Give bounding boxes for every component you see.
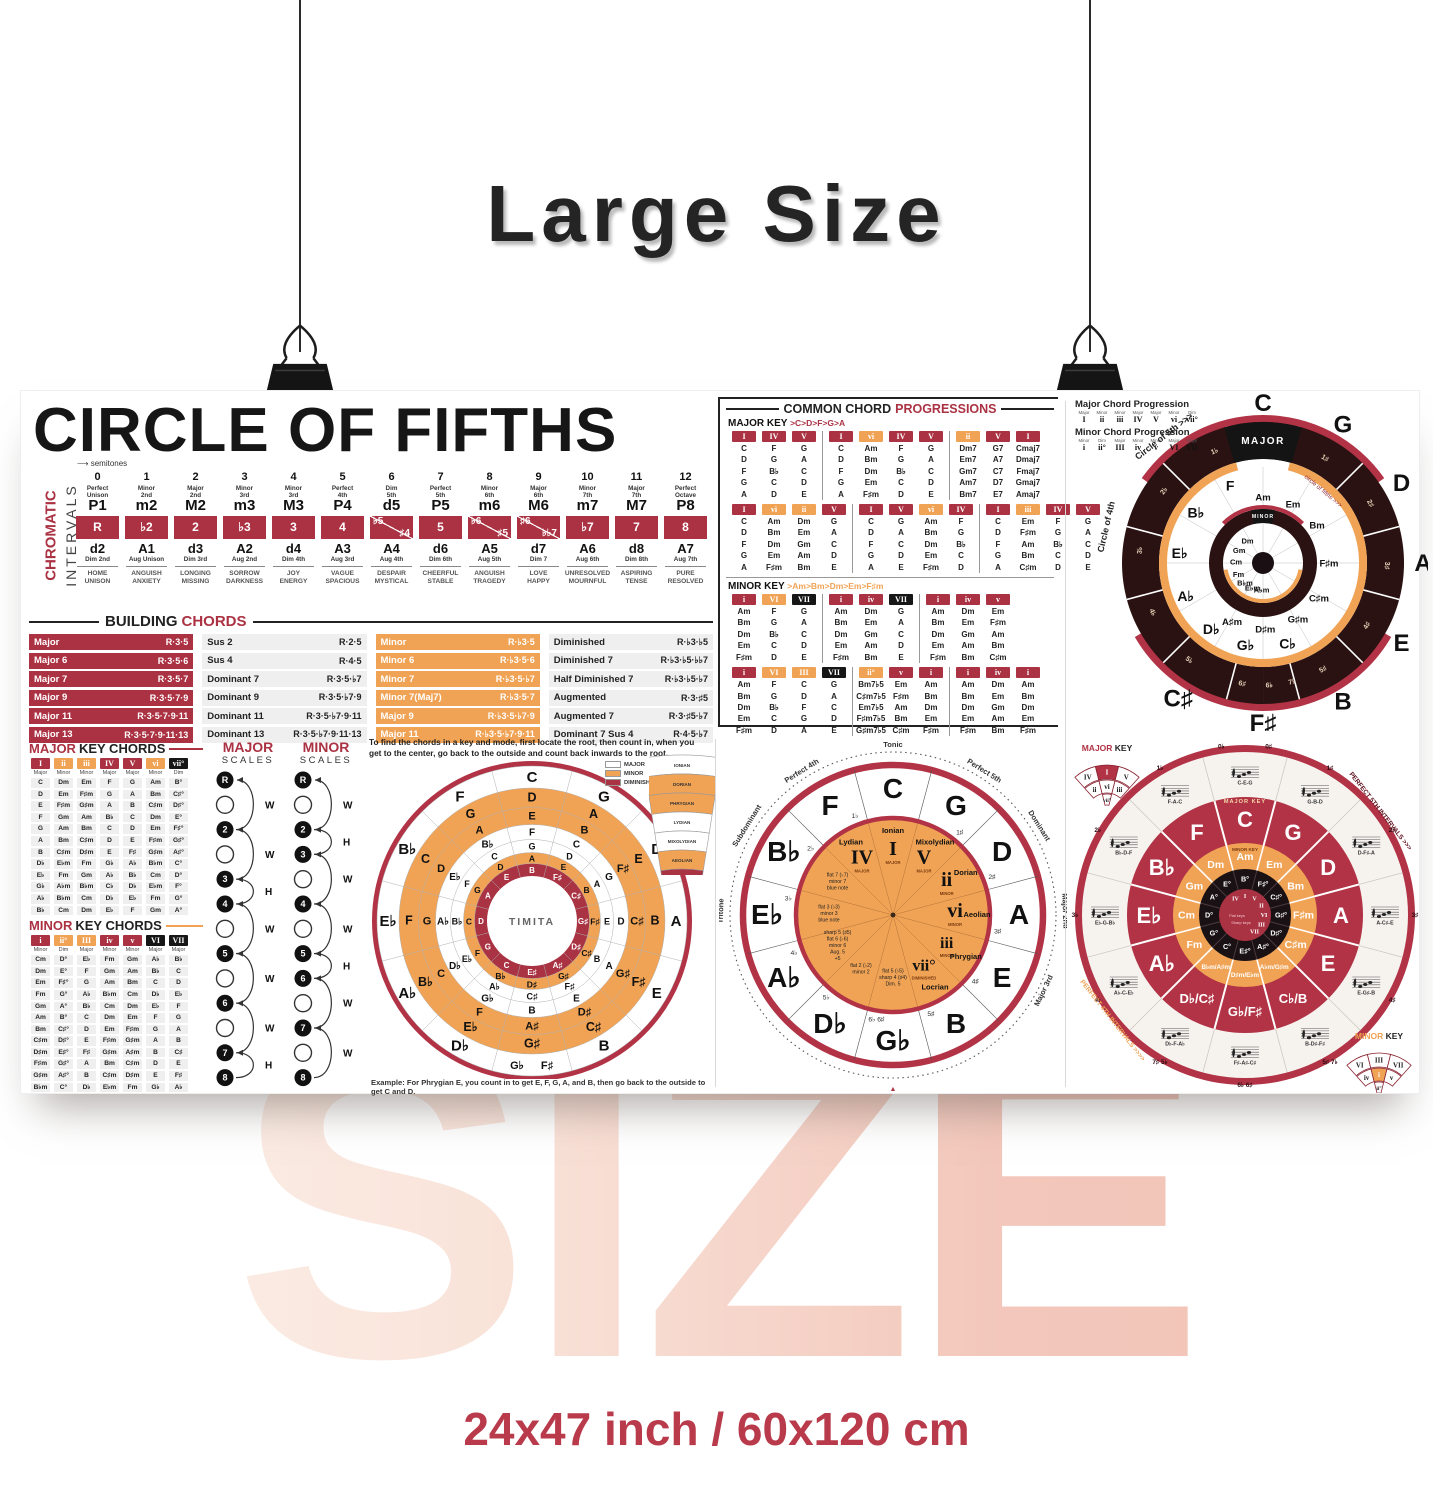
accidental-count: 4♯ <box>972 979 980 986</box>
scale-note: B <box>581 825 589 837</box>
scale-note: F <box>475 948 480 958</box>
chord-group: Sus 2R·2·5Sus 4R·4·5Dominant 7R·3·5·♭7Do… <box>202 634 366 745</box>
chord-cell: Gm <box>856 629 886 640</box>
alt-interval: A7 <box>661 541 710 556</box>
alteration-note: +5 <box>835 956 841 962</box>
interval-abbr: M6 <box>514 497 563 514</box>
chord-cell: Dmaj7 <box>1013 454 1043 465</box>
roman-numeral-chip: iv <box>956 594 980 605</box>
alt-interval: A6 <box>563 541 612 556</box>
chord-cell: C <box>789 466 819 477</box>
minor-key-chords-title: MINORKEY CHORDS <box>29 918 203 933</box>
chord-cell: A <box>983 562 1013 573</box>
numeral-chips: iivVII <box>826 594 916 605</box>
chord-cell: G <box>77 978 96 988</box>
progression-line: DmGmDm <box>953 702 1043 713</box>
outer-function-label: Tritone <box>719 898 726 923</box>
alteration-note: flat 6 (♭6) <box>827 937 849 943</box>
minor-key-chain: >Am>Bm>Dm>Em>F♯m <box>787 581 883 591</box>
roman-numeral-chip: IV <box>100 758 119 769</box>
chord-cell: Bm <box>856 652 886 663</box>
alt-interval: d6 <box>416 541 465 556</box>
alt-interval-name: Aug 4th <box>371 556 412 567</box>
chord-cell: Em <box>983 606 1013 617</box>
note-head <box>1358 845 1362 848</box>
roman-numeral-chip: I <box>1016 431 1040 442</box>
chord-cell: Bm <box>983 640 1013 651</box>
staff-circle-section: 0♭0♯1♯2♯3♯4♯5♯ 7♭6♭ 6♯7♯ 5♭4♭3♭2♭1♭PERFE… <box>1069 737 1421 1093</box>
flat-key-letter: G♭ <box>1237 637 1255 653</box>
triad-label: F-A-C <box>1168 799 1183 805</box>
alteration-note: flat 2 (♭2) <box>850 963 872 969</box>
chord-cell: Em <box>826 640 856 651</box>
scale-step-label: 4 <box>300 899 305 909</box>
chord-cell: Dm <box>100 1013 119 1023</box>
seventh-note: E <box>504 873 510 882</box>
progression-line: DBmGA <box>826 454 946 465</box>
numeral-chips: IviiiV <box>729 504 849 515</box>
progression-row: IIVVCFGDGAFB♭CGCDADEIviIVVCAmFGDBmGAFDmB… <box>726 431 1054 500</box>
chord-cell: F♯m <box>983 617 1013 628</box>
title-accent: MINOR <box>29 918 72 933</box>
semitone-number: 2 <box>171 471 220 483</box>
mode-numeral: V <box>917 846 932 868</box>
interval-arc <box>314 780 331 830</box>
chord-cell: E♭m <box>146 882 165 892</box>
numeral-chips: iii°IIIivvVIVII <box>29 935 203 946</box>
key-chords-row: C♯mD♯°EF♯mG♯mAB <box>29 1035 203 1047</box>
chord-cell: G <box>983 550 1013 561</box>
chord-cell: C <box>31 778 50 788</box>
chord-cell: F <box>946 516 976 527</box>
chord-cell: D♯m <box>77 848 96 858</box>
quality-label: Major <box>121 770 144 776</box>
circle-of-fifths-poster: CIRCLE OF FIFTHS CHROMATIC INTERVALS ⟶ s… <box>20 390 1420 1094</box>
mode-numeral: IV <box>851 846 874 868</box>
chord-cell: Dm <box>916 702 946 713</box>
feel-line: UNRESOLVED <box>563 570 612 578</box>
chord-cell: Am <box>953 679 983 690</box>
chord-cell: D♭ <box>77 1083 96 1093</box>
progression-line: DmB♭C <box>729 629 819 640</box>
major-key-letter: F <box>1190 820 1203 845</box>
binder-clip-right <box>1047 322 1133 398</box>
scale-step-label: 2 <box>222 825 227 835</box>
chord-cell: Cmaj7 <box>1013 443 1043 454</box>
scale-note: D♯ <box>578 1006 592 1018</box>
feel-line: SORROW <box>220 570 269 578</box>
numeral-chips: IiiiiiIVVvivii° <box>29 758 203 769</box>
feel-line: TENSE <box>612 578 661 586</box>
interval-feel: ASPIRINGTENSE <box>612 567 661 586</box>
chord-cell: C♯m <box>146 801 165 811</box>
chord-cell: Bm <box>789 562 819 573</box>
chord-cell: D <box>886 489 916 500</box>
scale-note: F♯ <box>632 975 646 989</box>
numeral: iv <box>1129 443 1147 452</box>
scale-step-label: 4 <box>222 899 227 909</box>
roman-numeral-chip: ii° <box>54 935 73 946</box>
major-key-letter: G <box>1334 411 1353 438</box>
alteration-note: sharp 5 (♯5) <box>824 930 852 936</box>
scale-note: G♭ <box>481 994 494 1005</box>
semitone-number: 7 <box>416 471 465 483</box>
semitone-number: 3 <box>220 471 269 483</box>
sharp-minor-letter: Em <box>1286 500 1301 511</box>
progression-block: iiviAmDmAmBmEmBmDmGmDmEmAmEmF♯mBmF♯m <box>949 667 1046 736</box>
root-note: C <box>527 769 538 786</box>
chord-cell: F♯ <box>123 848 142 858</box>
roman-numeral-chip: VI <box>762 594 786 605</box>
chord-name: Sus 2 <box>207 637 232 648</box>
progression-block: ii°viBm7♭5EmAmC♯m7♭5F♯mBmEm7♭5AmDmF♯m7♭5… <box>852 667 949 736</box>
alt-interval-name: Dim 7 <box>518 556 559 567</box>
roman-numeral-chip: V <box>123 758 142 769</box>
modes-wedge: IONIANDORIANPHRYGIANLYDIANMIXOLYDIANAEOL… <box>649 753 715 875</box>
chord-cell: Em <box>856 477 886 488</box>
roman-numeral-chip: i <box>926 594 950 605</box>
seventh-note: G♯ <box>578 917 588 926</box>
chord-cell: A♯° <box>54 1071 73 1081</box>
chord-cell: Em <box>146 824 165 834</box>
chord-cell: G <box>789 606 819 617</box>
chord-cell: F <box>729 466 759 477</box>
alt-interval-name: Aug 7th <box>665 556 706 567</box>
numeral: v <box>1147 443 1165 452</box>
progression-line: G♯m7♭5C♯mF♯m <box>856 725 946 736</box>
chord-cell: A♭ <box>169 1083 188 1093</box>
chord-cell: G♭ <box>146 1083 165 1093</box>
arrowhead <box>237 901 243 907</box>
diminished-chord: C° <box>1223 942 1231 951</box>
quality-label: Dim <box>52 947 75 953</box>
key-chords-row: G♭A♭mB♭mC♭D♭E♭mF° <box>29 881 203 893</box>
interval-arc <box>314 830 331 855</box>
progression-line: BmGDA <box>729 691 849 702</box>
chord-formula: R·3·5·6 <box>158 656 189 666</box>
scale-step-label: 3 <box>222 874 227 884</box>
legend-swatch <box>605 761 621 768</box>
triad-label: A-C♯-E <box>1376 921 1394 927</box>
chord-cell: C♭ <box>100 882 119 892</box>
arrowhead <box>237 777 243 783</box>
chord-row: Dominant 11R·3·5·♭7·9·11 <box>202 708 366 724</box>
major-progression-blocks: IIVVCFGDGAFB♭CGCDADEIviIVVCAmFGDBmGAFDmB… <box>726 431 1054 573</box>
flat-minor-letter: Cm <box>1230 558 1242 567</box>
chord-cell: C♯m <box>123 1059 142 1069</box>
scale-note: G <box>423 916 432 928</box>
chord-cell: C <box>169 967 188 977</box>
chord-cell: D <box>169 978 188 988</box>
alteration-note: Aug. 5 <box>830 949 845 955</box>
progression-line: EmAmEm <box>953 713 1043 724</box>
progression-line: Gm7C7Fmaj7 <box>953 466 1043 477</box>
chord-cell: D <box>983 527 1013 538</box>
chord-cell: D♭ <box>31 859 50 869</box>
interval-name: Major7th <box>612 483 661 497</box>
scale-step-label: 5 <box>300 949 305 959</box>
chromatic-column: 1Minor2ndm2♭2A1Aug UnisonANGUISHANXIETY <box>122 471 171 586</box>
alt-interval: d2 <box>73 541 122 556</box>
numeral-chips: IVviIV <box>856 504 976 515</box>
brand-center: TIMITA <box>509 916 555 928</box>
chord-row: AugmentedR·3·♯5 <box>549 690 713 706</box>
note-head <box>1126 841 1130 844</box>
scale-note: A♯ <box>525 1021 539 1033</box>
roman-numeral-chip: iii <box>1016 504 1040 515</box>
seventh-note: E♯ <box>527 968 536 977</box>
outer-function-label: Subdominant <box>730 802 763 848</box>
fan-title: MAJOR KEY <box>1082 743 1133 753</box>
progression-line: FDmB♭C <box>826 466 946 477</box>
chord-cell: G <box>916 443 946 454</box>
chord-cell: E♭m <box>54 859 73 869</box>
triad-label: B-D♯-F♯ <box>1305 1042 1325 1048</box>
chord-cell: D° <box>54 955 73 965</box>
chord-row: Major 9R·3·5·7·9 <box>29 690 193 706</box>
chord-cell: E <box>169 1059 188 1069</box>
scale-degree-box: 2 <box>174 516 217 539</box>
interval-arc <box>236 780 253 830</box>
chord-cell: Bm <box>953 652 983 663</box>
mode-band-label: IONIAN <box>674 763 691 768</box>
roman-numeral-chip: ii <box>956 431 980 442</box>
chord-formula: R·3·5·7 <box>158 674 189 684</box>
scale-degree-box: ♭6♯5 <box>468 516 511 539</box>
accidental-count: 3♯ <box>1412 912 1419 919</box>
key-letter: G♭ <box>876 1025 911 1056</box>
scale-note: E♭ <box>462 954 472 964</box>
interval-name: Perfect5th <box>416 483 465 497</box>
chord-cell: D♯° <box>54 1036 73 1046</box>
chord-cell: Bm <box>77 824 96 834</box>
chord-cell: F♯ <box>77 1048 96 1058</box>
roman-numeral-chip: vii° <box>169 758 188 769</box>
chord-cell: C <box>946 550 976 561</box>
key-letter: F <box>821 790 838 821</box>
chord-cell: Dm <box>953 702 983 713</box>
interval-abbr: M7 <box>612 497 661 514</box>
interval-label: W <box>265 974 275 985</box>
center-dot <box>1252 552 1274 574</box>
chord-cell: C7 <box>983 466 1013 477</box>
chord-cell: Dm <box>729 629 759 640</box>
chord-cell: F♯m <box>916 725 946 736</box>
scales-subtitle: SCALES <box>287 755 365 766</box>
fan-numeral: III <box>1375 1057 1383 1065</box>
chord-cell: F♯m <box>729 652 759 663</box>
degree-main: ♭6 <box>471 516 481 528</box>
chord-cell: C <box>123 813 142 823</box>
minor-key-ring-title: MINOR KEY <box>1232 847 1258 852</box>
chord-formula: R·2·5 <box>339 637 362 647</box>
progression-line: FB♭C <box>729 466 819 477</box>
chord-cell: Am <box>146 778 165 788</box>
chord-cell: Am <box>886 702 916 713</box>
chord-cell: C♯m7♭5 <box>856 691 886 702</box>
key-chords-row: B♭mC°D♭E♭mFmG♭A♭ <box>29 1082 203 1094</box>
chord-group: MinorR·♭3·5Minor 6R·♭3·5·6Minor 7R·♭3·5·… <box>376 634 540 745</box>
root-note: F♯ <box>541 1060 554 1072</box>
chord-cell: E <box>789 489 819 500</box>
mode-band-label: AEOLIAN <box>672 858 693 863</box>
interval-abbr: m2 <box>122 497 171 514</box>
chord-cell: B♭ <box>77 1002 96 1012</box>
chord-cell: B♭ <box>31 906 50 916</box>
alteration-note: Dim. 5 <box>886 981 901 987</box>
chord-cell: B <box>77 1071 96 1081</box>
chord-cell: G <box>819 516 849 527</box>
feel-line: SPACIOUS <box>318 578 367 586</box>
note-head <box>1172 1034 1176 1037</box>
numeral-chips: iVIVII <box>729 594 819 605</box>
quality-label: Major <box>98 770 121 776</box>
chord-cell: Am <box>729 606 759 617</box>
chord-cell: B° <box>169 778 188 788</box>
accidental-count: 5♯ <box>927 1011 935 1018</box>
numeral-chips: IIVV <box>729 431 819 442</box>
chord-formula: R·♭3·♭5·♭♭7 <box>661 655 709 666</box>
outer-function-label: Major 3rd <box>1032 973 1055 1008</box>
key-chords-row: BC♯mD♯mEF♯G♯mA♯° <box>29 847 203 859</box>
mode-band-label: PHRYGIAN <box>670 801 695 806</box>
chord-formula: R·♭3·5·6 <box>500 655 535 666</box>
alteration-note: flat 3 (♭3) <box>818 905 840 911</box>
chord-cell: G° <box>169 894 188 904</box>
chord-cell: Am <box>983 629 1013 640</box>
scale-step-label: 7 <box>300 1023 305 1033</box>
chord-cell: E♭m <box>100 1083 119 1093</box>
mode-quality: DIMINISHED <box>912 976 937 981</box>
chord-cell: B♭m <box>54 894 73 904</box>
note-head <box>1307 1036 1311 1039</box>
chord-formula: R·3·♯5 <box>681 693 708 703</box>
degree-alt: ♭♭7 <box>542 528 557 539</box>
headline: Large Size <box>0 168 1433 260</box>
roman-numeral-chip: iv <box>100 935 119 946</box>
chord-name: Major 6 <box>34 655 67 666</box>
interval-name-line: Minor <box>269 485 318 492</box>
chord-cell: C♯m <box>31 1036 50 1046</box>
quality-label: Major <box>167 947 190 953</box>
chord-cell: Dm <box>31 967 50 977</box>
interval-abbr: M2 <box>171 497 220 514</box>
chord-cell: D♯m <box>123 1071 142 1081</box>
chord-cell: Fm <box>146 894 165 904</box>
size-caption: 24x47 inch / 60x120 cm <box>0 1402 1433 1456</box>
numeral: III <box>1111 443 1129 452</box>
feel-line: DESPAIR <box>367 570 416 578</box>
scale-degree-box: ♭7 <box>566 516 609 539</box>
progression-line: EmAmD <box>826 640 916 651</box>
roman-numeral-chip: I <box>986 504 1010 515</box>
chord-cell: Bm <box>146 790 165 800</box>
interval-arc <box>236 954 253 1004</box>
chord-cell: G <box>886 606 916 617</box>
chord-cell: Gm <box>953 629 983 640</box>
chord-cell: G <box>946 527 976 538</box>
chord-formula: R·3·5·7·9·11 <box>137 711 188 721</box>
feel-line: MYSTICAL <box>367 578 416 586</box>
interval-name: Minor3rd <box>269 483 318 497</box>
seventh-note: G <box>485 943 491 952</box>
chord-cell: G <box>759 691 789 702</box>
major-key-letter: D <box>1320 855 1336 880</box>
chord-cell: Gm <box>789 539 819 550</box>
poster-title: CIRCLE OF FIFTHS <box>33 395 617 466</box>
root-note: E♭ <box>379 913 396 930</box>
scale-step-label: 6 <box>222 998 227 1008</box>
chord-cell: G <box>100 790 119 800</box>
chord-row: Dominant 9R·3·5·♭7·9 <box>202 690 366 706</box>
chord-cell: Am <box>54 824 73 834</box>
chord-cell: E♭ <box>169 990 188 1000</box>
interval-abbr: m7 <box>563 497 612 514</box>
chord-cell: F♯m <box>729 725 759 736</box>
chord-cell: G♯m7♭5 <box>856 725 886 736</box>
chord-cell: F <box>886 443 916 454</box>
chord-cell: G <box>789 443 819 454</box>
modes-circle-section: TonicPerfect 5thDominantMajor 2ndMajor 3… <box>719 739 1067 1091</box>
title-accent: MAJOR <box>29 741 76 756</box>
chord-cell: Dm <box>54 778 73 788</box>
interval-name: Minor6th <box>465 483 514 497</box>
arrowhead <box>315 901 321 907</box>
feel-line: ANGUISH <box>465 570 514 578</box>
note-head <box>1126 981 1130 984</box>
interval-name: Minor2nd <box>122 483 171 497</box>
feel-line: DARKNESS <box>220 578 269 586</box>
chord-name: Minor 7(Maj7) <box>381 692 442 703</box>
chords-title: CHORDS <box>182 613 247 630</box>
root-note: F <box>455 788 464 805</box>
interval-feel: SORROWDARKNESS <box>220 567 269 586</box>
chord-cell: A <box>146 1036 165 1046</box>
chord-name: Major 11 <box>34 711 72 722</box>
triad-label: E-G♯-B <box>1357 991 1375 997</box>
note-head <box>1242 773 1246 776</box>
flat-key-letter: D♭ <box>1203 621 1220 637</box>
roman-numeral-chip: ii <box>54 758 73 769</box>
chord-name: Major 9 <box>34 692 67 703</box>
roman-numeral-chip: vi <box>919 504 943 515</box>
arrowhead <box>237 876 243 882</box>
progression-legend-title: Major Chord Progression <box>1075 399 1225 410</box>
alt-interval: d3 <box>171 541 220 556</box>
scale-note: C♯ <box>527 992 538 1002</box>
chord-cell: Bm <box>729 691 759 702</box>
roman-numeral-chip: iv <box>986 667 1010 678</box>
interval-name: Minor3rd <box>220 483 269 497</box>
chord-cell: A♭ <box>123 859 142 869</box>
chord-cell: Bm <box>1013 550 1043 561</box>
chord-cell: E <box>886 652 916 663</box>
progression-line: DBmEmA <box>729 527 849 538</box>
scale-note: E <box>573 994 580 1005</box>
seventh-note: C♯ <box>571 892 581 901</box>
roman-numeral-chip: III <box>77 935 96 946</box>
mode-quality: MAJOR <box>854 868 869 873</box>
chord-cell: G <box>759 454 789 465</box>
chord-cell: A♭ <box>31 894 50 904</box>
quality-label: Dim <box>167 770 190 776</box>
chord-cell: Am <box>77 813 96 823</box>
chord-row: Minor 7R·♭3·5·♭7 <box>376 671 540 687</box>
arrowhead <box>315 951 321 957</box>
flat-key-letter: A♭ <box>1177 588 1194 604</box>
roman-numeral-chip: VII <box>889 594 913 605</box>
chord-cell: C <box>759 713 789 724</box>
